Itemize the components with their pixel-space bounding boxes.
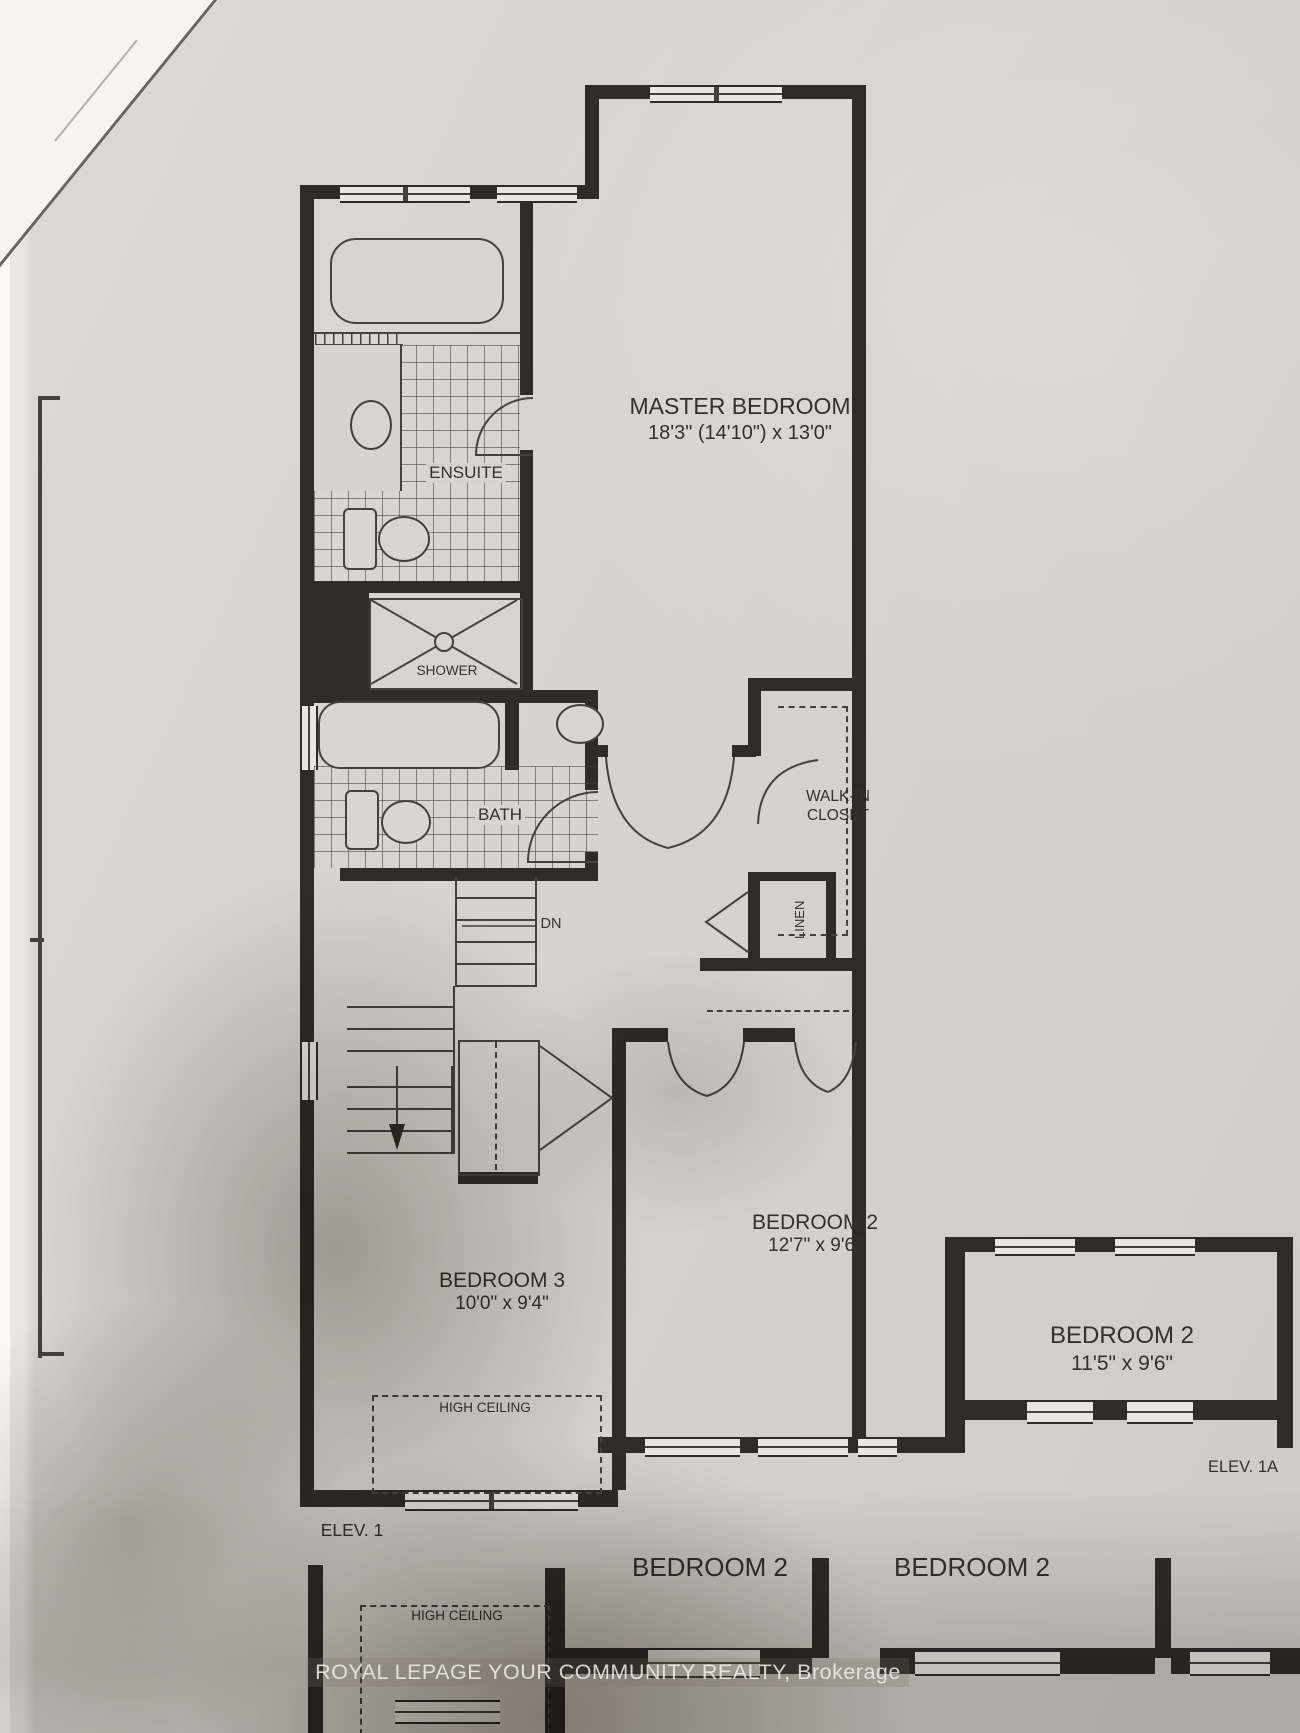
high-ceiling-bottom-label: HIGH CEILING — [411, 1608, 503, 1624]
bedroom2-label: BEDROOM 2 12'7" x 9'6" — [752, 1210, 878, 1258]
bedroom2-door-arc-2 — [795, 1042, 856, 1092]
elev-1-label: ELEV. 1 — [321, 1520, 384, 1541]
floorplan-photo: MASTER BEDROOM 18'3" (14'10") x 13'0" EN… — [0, 0, 1300, 1733]
bedroom2-dimensions: 12'7" x 9'6" — [752, 1235, 878, 1258]
bedroom2-alt-dimensions: 11'5" x 9'6" — [1050, 1351, 1194, 1376]
walk-in-closet-line2: CLOSET — [806, 807, 870, 826]
door-arc-layer — [0, 0, 1300, 1733]
bath-label: BATH — [475, 805, 525, 825]
linen-label: LINEN — [792, 901, 808, 939]
bedroom2-alt-name: BEDROOM 2 — [1050, 1322, 1194, 1351]
shower-drain-icon — [435, 633, 453, 651]
bedroom2-name: BEDROOM 2 — [752, 1210, 878, 1235]
bedroom2-door-arc-1 — [668, 1042, 744, 1096]
walk-in-closet-line1: WALK-IN — [806, 788, 870, 807]
walk-in-closet-label: WALK-IN CLOSET — [806, 788, 870, 825]
master-bedroom-name: MASTER BEDROOM — [629, 393, 850, 421]
ensuite-label: ENSUITE — [426, 463, 506, 483]
master-double-door-arc — [606, 757, 734, 848]
master-bedroom-dimensions: 18'3" (14'10") x 13'0" — [629, 421, 850, 445]
stairs-arrow-head — [389, 1124, 405, 1150]
linen-door — [706, 892, 748, 952]
bedroom2-bottom-right-label: BEDROOM 2 — [894, 1552, 1050, 1583]
bedroom2-bottom-left-label: BEDROOM 2 — [632, 1552, 788, 1583]
elev-1a-label: ELEV. 1A — [1208, 1458, 1278, 1478]
bath-door-arc — [528, 792, 598, 862]
brokerage-watermark: ROYAL LEPAGE YOUR COMMUNITY REALTY, Brok… — [307, 1658, 909, 1687]
shower-label: SHOWER — [417, 663, 478, 679]
bedroom3-dimensions: 10'0" x 9'4" — [439, 1293, 565, 1316]
hall-closet-doors — [540, 1046, 612, 1150]
high-ceiling-main-label: HIGH CEILING — [439, 1400, 531, 1416]
bedroom2-alt-label: BEDROOM 2 11'5" x 9'6" — [1050, 1322, 1194, 1376]
stairs-dn-label: DN — [541, 916, 562, 933]
bedroom3-name: BEDROOM 3 — [439, 1268, 565, 1293]
master-bedroom-label: MASTER BEDROOM 18'3" (14'10") x 13'0" — [629, 393, 850, 445]
ensuite-door-arc — [476, 398, 533, 455]
bedroom3-label: BEDROOM 3 10'0" x 9'4" — [439, 1268, 565, 1316]
